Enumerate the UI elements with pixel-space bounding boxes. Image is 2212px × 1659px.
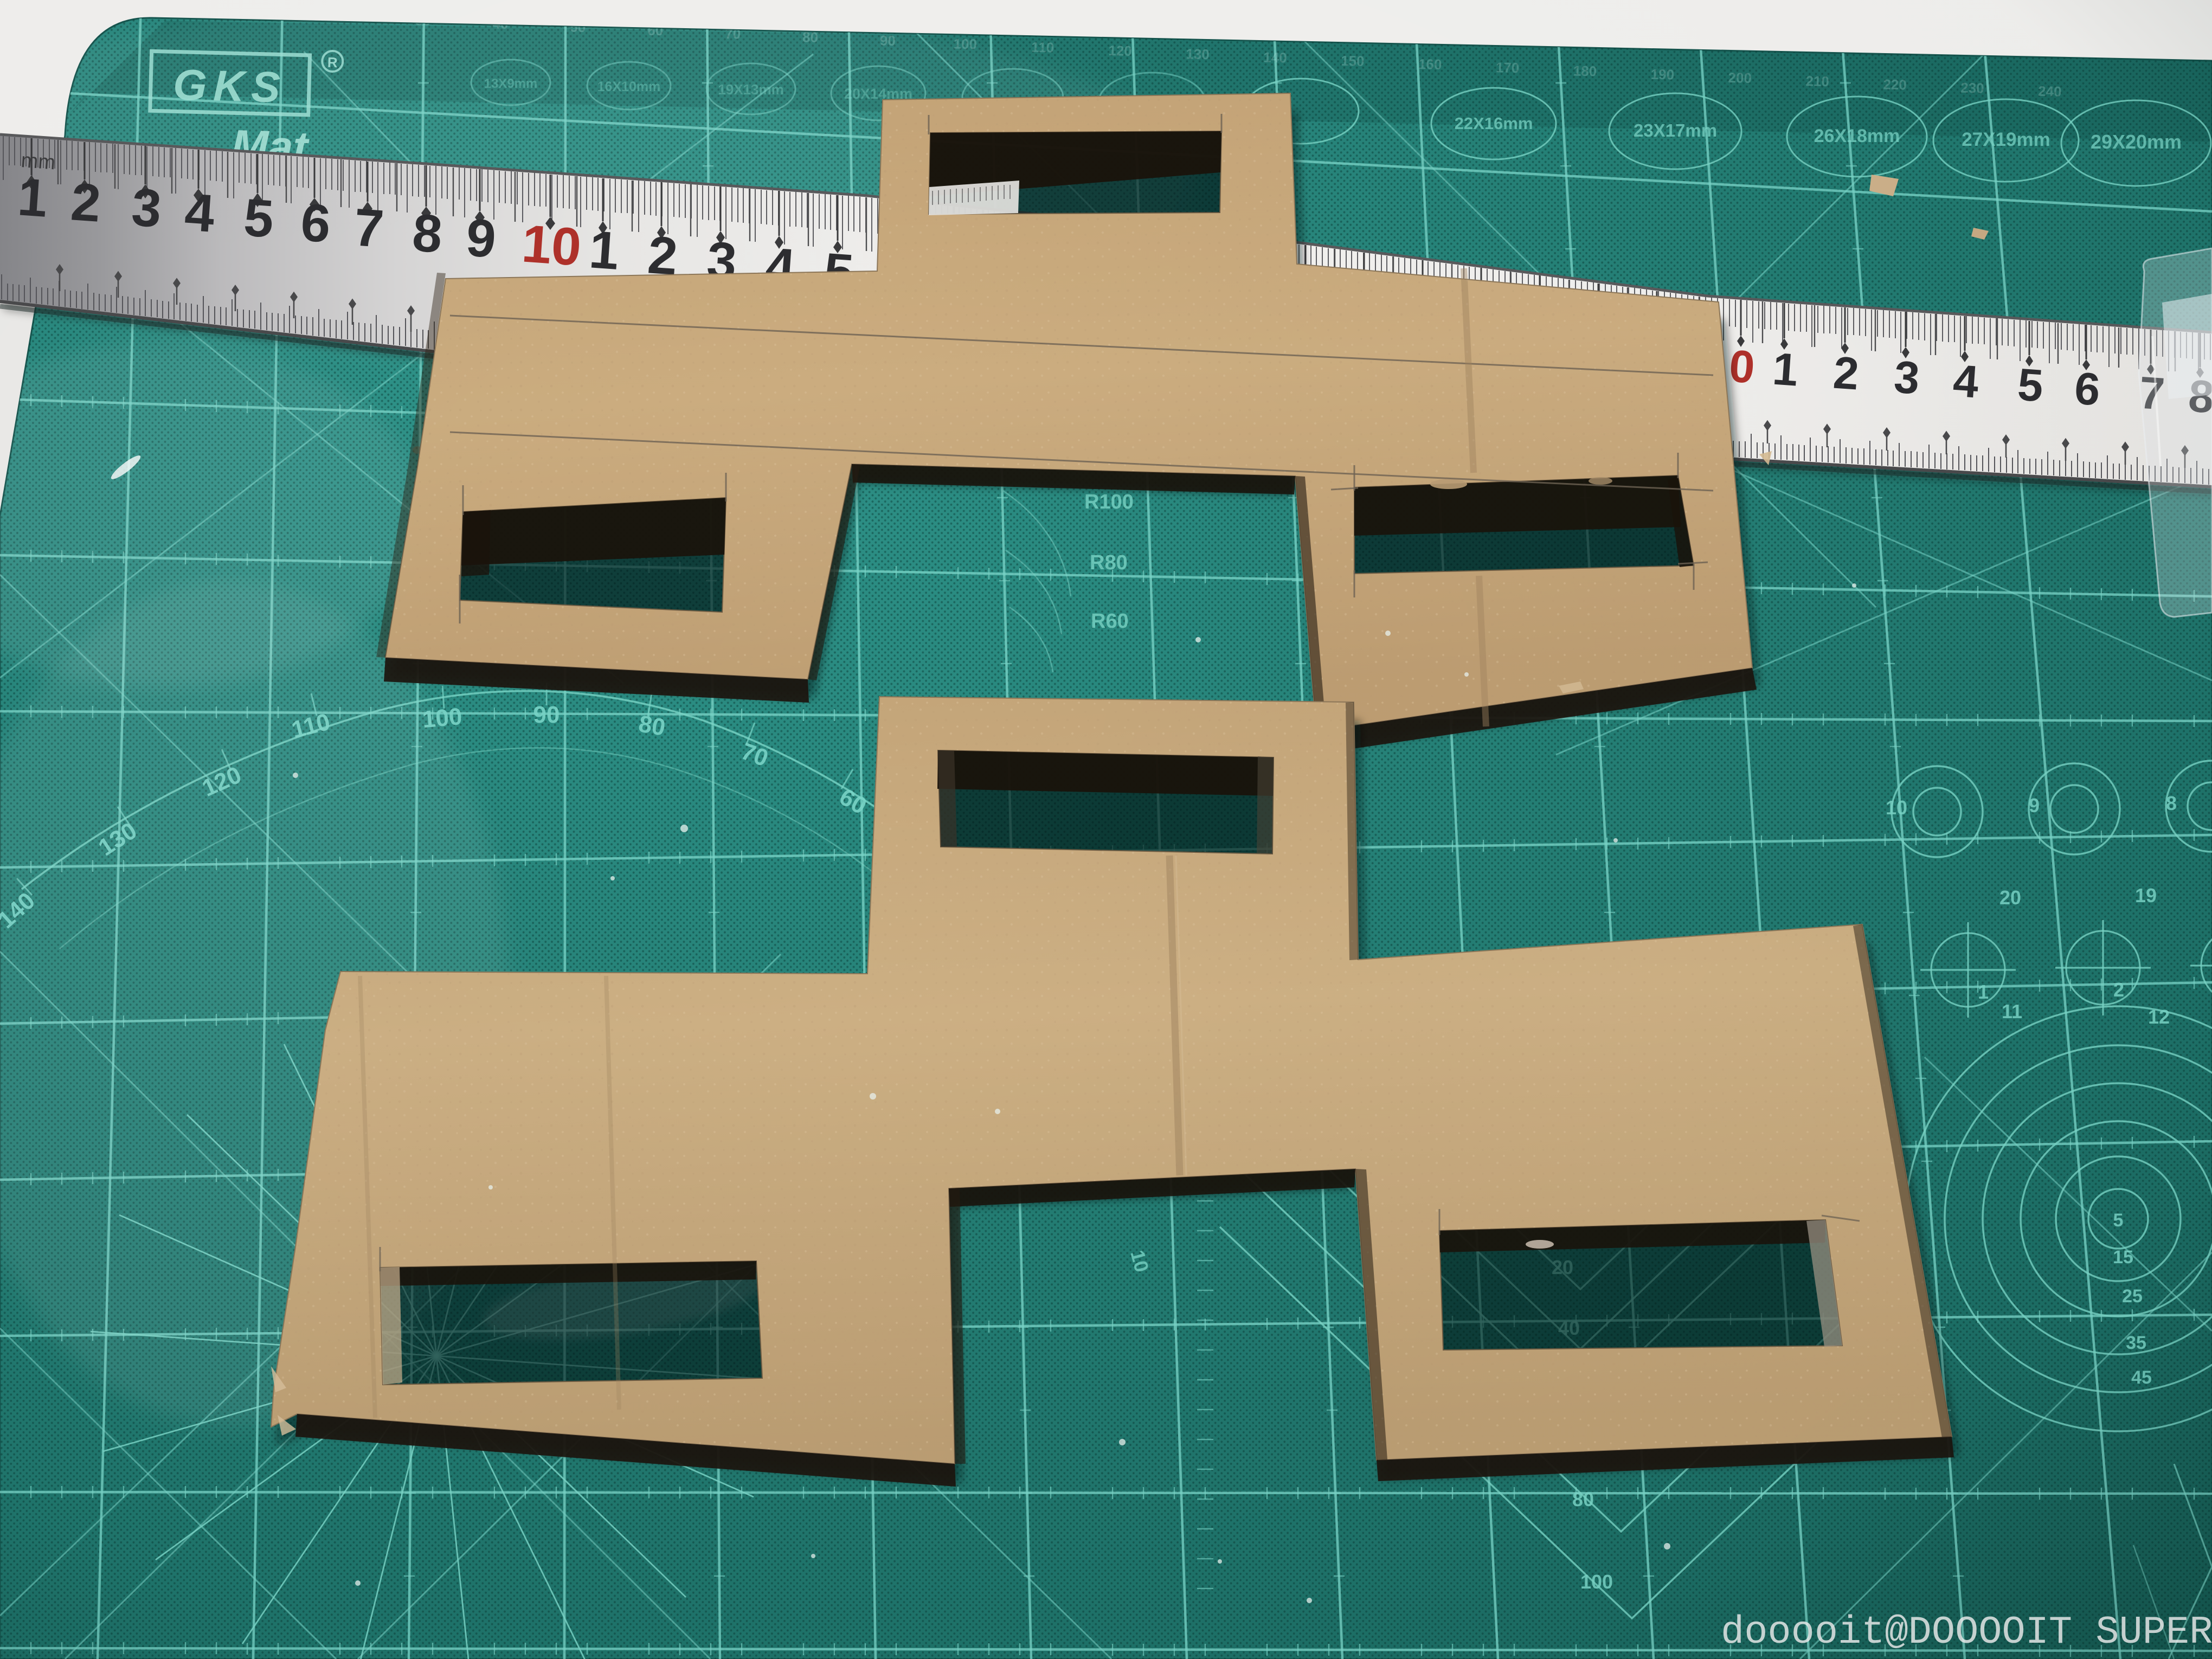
svg-text:dooooit@DOOOOIT SUPER: dooooit@DOOOOIT SUPER xyxy=(1721,1610,2212,1655)
